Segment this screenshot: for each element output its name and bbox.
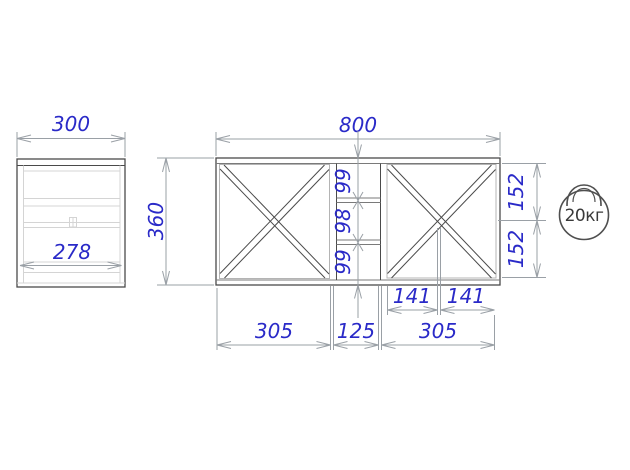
dim-label-360: 360: [144, 202, 168, 240]
dimension-right-halves: 141 141: [388, 228, 495, 315]
dim-label-125: 125: [337, 319, 375, 343]
side-view: [17, 159, 125, 287]
dim-label-141-right: 141: [447, 284, 485, 308]
load-capacity-label: 20кг: [565, 206, 604, 226]
dim-label-141-left: 141: [393, 284, 431, 308]
dim-label-300: 300: [52, 112, 90, 136]
drawing-canvas: 300 278: [0, 0, 630, 470]
dimension-side-width-300: 300: [17, 112, 125, 157]
technical-drawing: 300 278: [0, 0, 630, 470]
dim-label-305-right: 305: [419, 319, 457, 343]
dim-label-98: 98: [331, 208, 355, 233]
dim-label-99-bottom: 99: [331, 249, 355, 274]
left-cross-panel: [220, 165, 330, 279]
dim-label-305-left: 305: [255, 319, 293, 343]
dimension-front-height-360: 360: [144, 158, 214, 285]
dimension-right-heights: 152 152: [498, 164, 546, 278]
dim-label-99-top: 99: [331, 168, 355, 193]
dimension-side-inner-278: 278: [20, 240, 122, 269]
right-cross-panel: [387, 165, 496, 279]
load-capacity-badge: 20кг: [560, 185, 609, 240]
dim-label-152-top: 152: [504, 173, 528, 211]
dim-label-278: 278: [53, 240, 91, 264]
dim-label-152-bottom: 152: [504, 230, 528, 268]
dimension-chain-center-cells: 99 98 99: [331, 131, 363, 318]
